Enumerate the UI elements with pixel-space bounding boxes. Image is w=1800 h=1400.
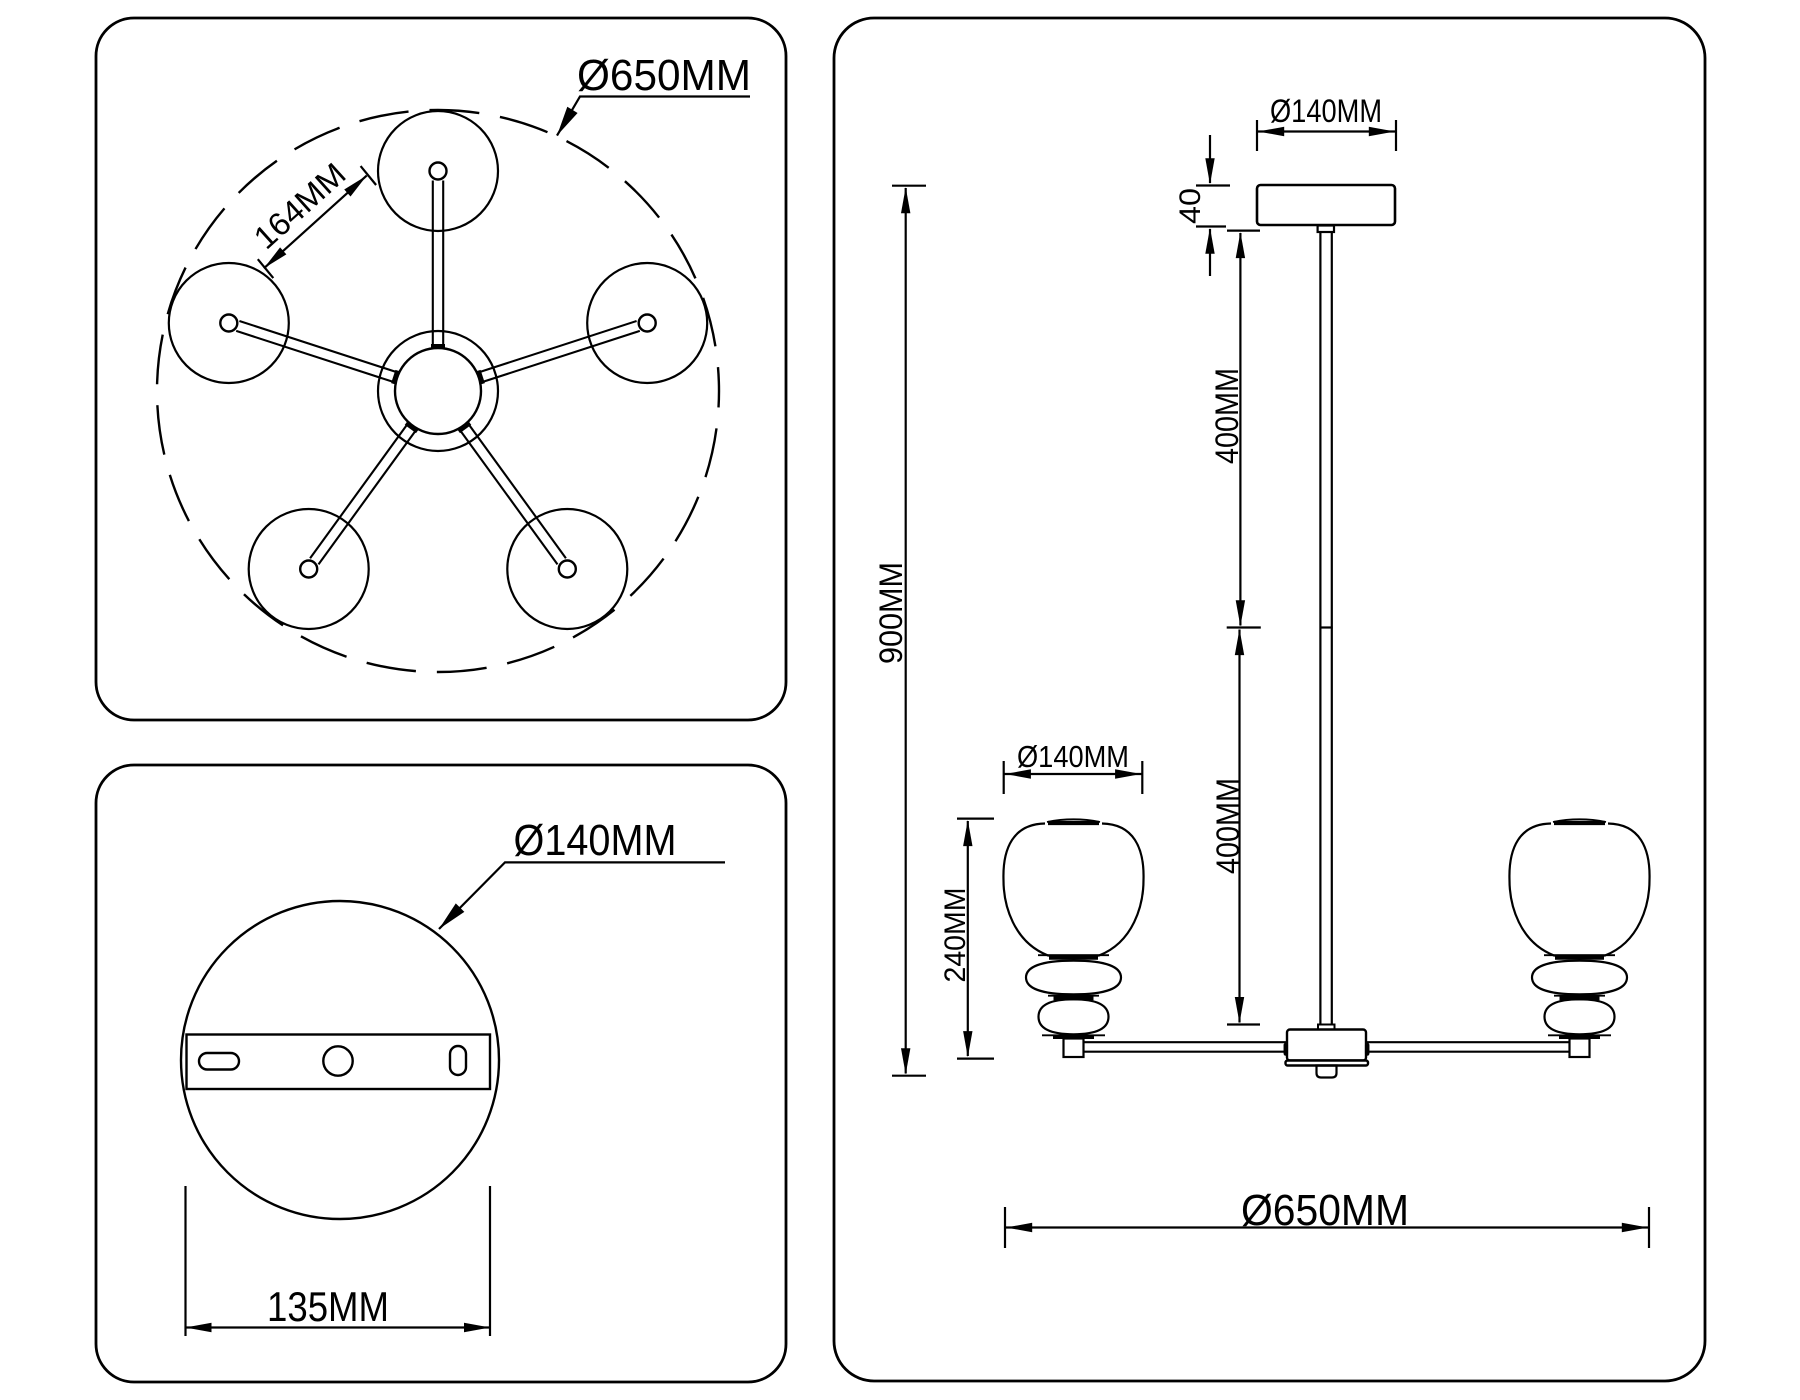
svg-text:900MM: 900MM xyxy=(873,562,909,664)
svg-text:135MM: 135MM xyxy=(267,1283,389,1330)
svg-text:400MM: 400MM xyxy=(1210,778,1246,874)
svg-text:Ø650MM: Ø650MM xyxy=(577,51,751,100)
svg-text:Ø140MM: Ø140MM xyxy=(1270,93,1382,129)
svg-text:Ø140MM: Ø140MM xyxy=(514,816,677,865)
svg-text:240MM: 240MM xyxy=(939,888,972,983)
svg-text:400MM: 400MM xyxy=(1209,368,1245,464)
svg-text:40: 40 xyxy=(1174,188,1207,224)
svg-text:Ø140MM: Ø140MM xyxy=(1017,739,1129,774)
